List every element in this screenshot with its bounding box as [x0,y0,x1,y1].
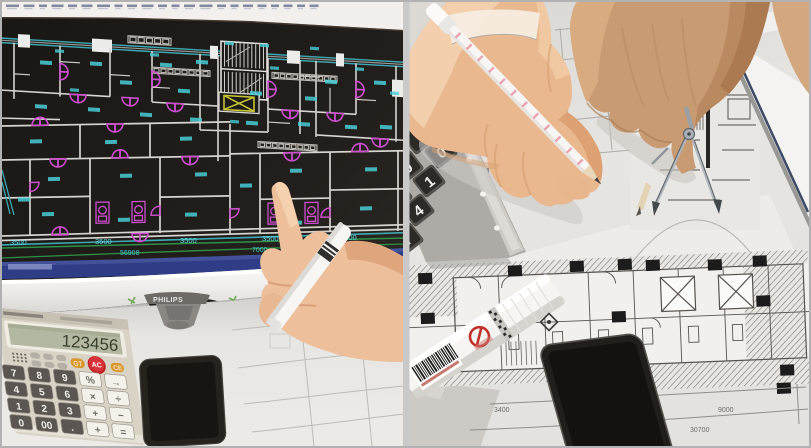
svg-text:%: % [85,375,96,387]
svg-text:9000: 9000 [718,407,734,414]
svg-text:→: → [110,377,122,389]
svg-text:PHILIPS: PHILIPS [153,297,183,304]
svg-text:3500: 3500 [180,236,197,245]
svg-text:3500: 3500 [10,238,27,247]
svg-text:3400: 3400 [494,407,510,414]
svg-text:3500: 3500 [262,234,279,243]
svg-text:30700: 30700 [690,427,710,434]
svg-text:56908: 56908 [120,250,140,257]
svg-text:AC: AC [91,362,102,370]
svg-text:00: 00 [41,420,54,432]
svg-text:GT: GT [73,361,83,369]
svg-text:3500: 3500 [95,237,112,246]
